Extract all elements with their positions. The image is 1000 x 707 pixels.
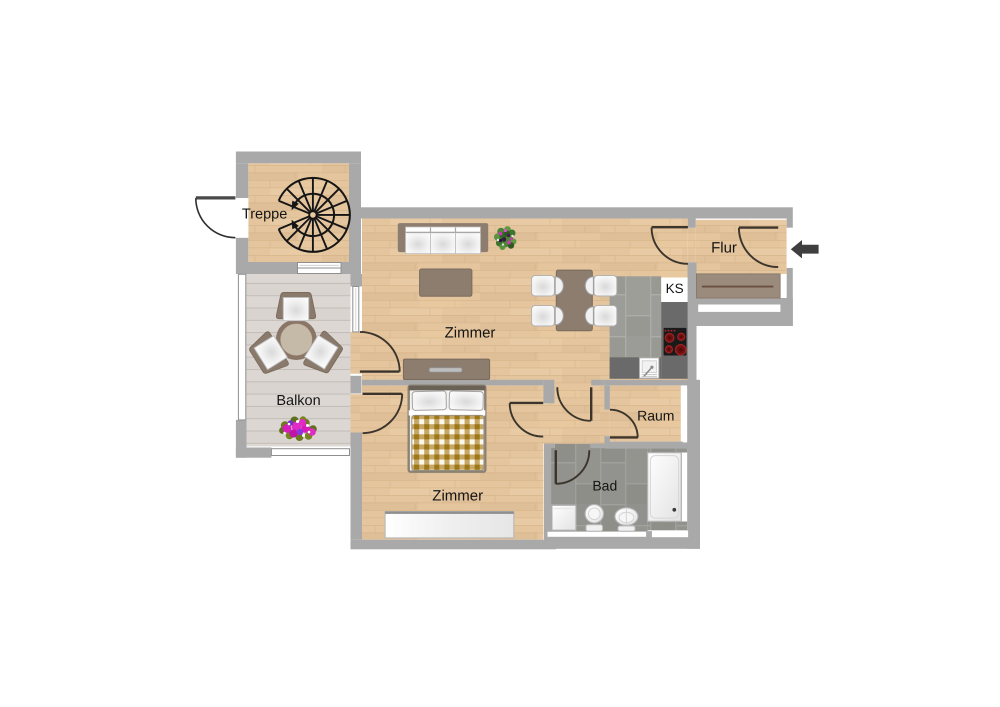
svg-text:Zimmer: Zimmer xyxy=(432,488,483,505)
svg-text:Treppe: Treppe xyxy=(242,207,287,223)
svg-text:Bad: Bad xyxy=(592,478,617,494)
svg-text:Flur: Flur xyxy=(711,239,737,256)
svg-text:Zimmer: Zimmer xyxy=(445,325,496,342)
svg-text:Raum: Raum xyxy=(637,408,674,424)
svg-text:Balkon: Balkon xyxy=(276,393,320,409)
svg-text:KS: KS xyxy=(666,281,684,296)
